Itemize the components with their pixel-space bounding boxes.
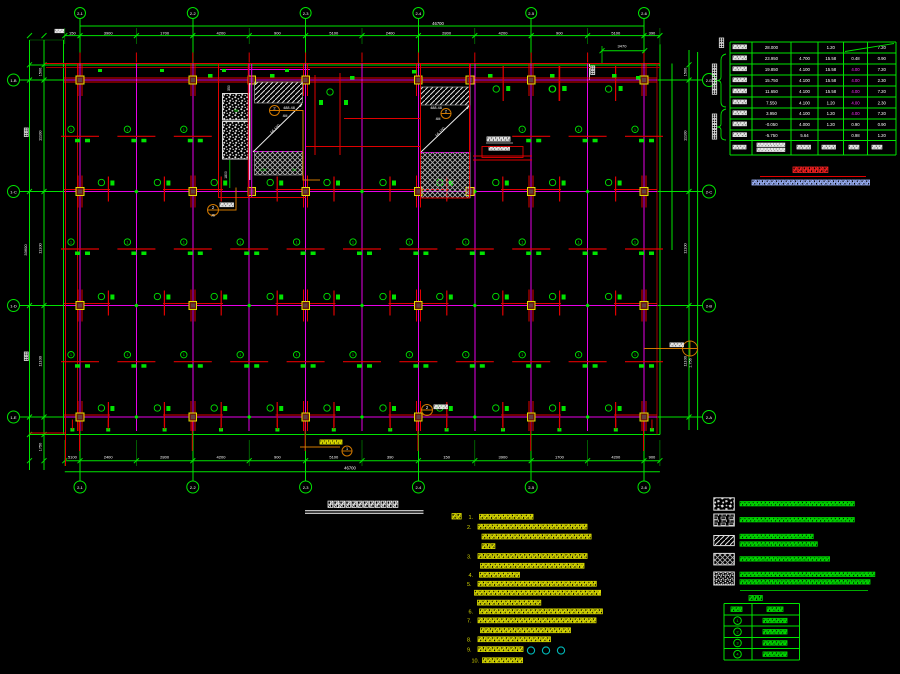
svg-text:9.: 9. xyxy=(467,647,472,653)
svg-text:2-B: 2-B xyxy=(706,304,713,309)
svg-text:2-3: 2-3 xyxy=(303,485,310,490)
svg-text:4.: 4. xyxy=(469,573,474,579)
svg-text:1-B: 1-B xyxy=(10,78,17,83)
svg-text:11100: 11100 xyxy=(683,355,688,366)
svg-text:900: 900 xyxy=(274,454,281,459)
svg-text:1.20: 1.20 xyxy=(827,45,836,50)
svg-text:2400: 2400 xyxy=(386,30,396,35)
svg-text:5100: 5100 xyxy=(68,454,78,459)
svg-text:2-4: 2-4 xyxy=(416,11,423,16)
svg-text:2800: 2800 xyxy=(160,454,170,459)
svg-text:2.30: 2.30 xyxy=(878,100,887,105)
svg-text:4.00: 4.00 xyxy=(851,100,860,105)
svg-text:3900: 3900 xyxy=(499,454,509,459)
svg-text:15.750: 15.750 xyxy=(765,78,779,83)
svg-text:1: 1 xyxy=(408,353,410,357)
svg-text:4200: 4200 xyxy=(499,30,509,35)
svg-text:0.90: 0.90 xyxy=(878,56,887,61)
svg-text:1: 1 xyxy=(521,241,523,245)
svg-text:1-E: 1-E xyxy=(10,415,17,420)
svg-text:2-5: 2-5 xyxy=(528,485,535,490)
svg-text:11100: 11100 xyxy=(38,242,43,253)
svg-text:1: 1 xyxy=(70,128,72,132)
svg-text:900: 900 xyxy=(649,454,656,459)
svg-text:8.: 8. xyxy=(467,638,472,644)
svg-text:1-D: 1-D xyxy=(10,304,17,309)
svg-text:488.48: 488.48 xyxy=(283,106,295,110)
svg-text:3.: 3. xyxy=(467,554,472,560)
svg-text:15.58: 15.58 xyxy=(825,78,836,83)
svg-text:1: 1 xyxy=(239,353,241,357)
svg-text:2-2: 2-2 xyxy=(190,11,197,16)
svg-text:1: 1 xyxy=(465,241,467,245)
svg-text:1750: 1750 xyxy=(39,443,43,451)
svg-text:-5.750: -5.750 xyxy=(765,133,778,138)
svg-text:1: 1 xyxy=(634,128,636,132)
svg-text:3470: 3470 xyxy=(618,44,628,49)
svg-text:0.98: 0.98 xyxy=(851,133,860,138)
svg-text:1: 1 xyxy=(352,241,354,245)
svg-text:3900: 3900 xyxy=(104,30,114,35)
svg-text:19.850: 19.850 xyxy=(765,67,779,72)
svg-text:150: 150 xyxy=(443,454,450,459)
svg-text:X4: X4 xyxy=(292,168,296,172)
svg-text:1: 1 xyxy=(296,353,298,357)
svg-text:7.: 7. xyxy=(467,619,472,625)
svg-text:1: 1 xyxy=(578,128,580,132)
svg-text:1700: 1700 xyxy=(555,454,565,459)
svg-text:1: 1 xyxy=(634,353,636,357)
svg-text:2.30: 2.30 xyxy=(878,78,887,83)
svg-text:1-C: 1-C xyxy=(10,190,17,195)
svg-text:6.: 6. xyxy=(469,610,474,616)
svg-text:4.00: 4.00 xyxy=(851,111,860,116)
svg-text:1: 1 xyxy=(578,353,580,357)
svg-text:1.756: 1.756 xyxy=(689,358,693,368)
svg-text:1: 1 xyxy=(239,241,241,245)
svg-text:2-4: 2-4 xyxy=(416,485,423,490)
svg-text:7.20: 7.20 xyxy=(878,111,887,116)
svg-text:15.58: 15.58 xyxy=(825,67,836,72)
svg-text:1.20: 1.20 xyxy=(827,122,836,127)
svg-text:488.48: 488.48 xyxy=(430,106,442,110)
svg-text:390: 390 xyxy=(649,30,656,35)
svg-text:1: 1 xyxy=(465,353,467,357)
svg-text:7.20: 7.20 xyxy=(878,89,887,94)
svg-text:1500: 1500 xyxy=(39,68,43,76)
svg-text:1.20: 1.20 xyxy=(878,133,887,138)
svg-text:5100: 5100 xyxy=(329,454,339,459)
svg-text:11100: 11100 xyxy=(683,130,688,141)
svg-text:7.20: 7.20 xyxy=(878,67,887,72)
svg-text:2-C: 2-C xyxy=(706,190,713,195)
svg-text:2-6: 2-6 xyxy=(641,11,648,16)
svg-text:11100: 11100 xyxy=(38,355,43,366)
svg-text:1: 1 xyxy=(634,241,636,245)
svg-text:2-2: 2-2 xyxy=(190,485,197,490)
svg-text:2800: 2800 xyxy=(442,30,452,35)
svg-text:33600: 33600 xyxy=(23,244,28,256)
svg-text:1: 1 xyxy=(183,241,185,245)
svg-text:0.90: 0.90 xyxy=(851,122,860,127)
svg-text:11.650: 11.650 xyxy=(765,89,778,94)
svg-text:2-6: 2-6 xyxy=(641,485,648,490)
svg-text:1: 1 xyxy=(408,241,410,245)
svg-text:2-3: 2-3 xyxy=(303,11,310,16)
svg-text:2400: 2400 xyxy=(104,454,114,459)
svg-text:2-1: 2-1 xyxy=(77,485,84,490)
svg-text:1.2K: 1.2K xyxy=(259,168,267,172)
svg-text:1.20: 1.20 xyxy=(827,111,836,116)
svg-text:1: 1 xyxy=(346,447,348,451)
svg-text:5.: 5. xyxy=(467,582,472,588)
svg-text:11100: 11100 xyxy=(683,242,688,253)
svg-text:2-1: 2-1 xyxy=(77,11,84,16)
svg-text:900: 900 xyxy=(556,30,563,35)
svg-text:15.58: 15.58 xyxy=(825,89,836,94)
svg-text:1: 1 xyxy=(352,353,354,357)
svg-text:1: 1 xyxy=(70,241,72,245)
svg-text:350: 350 xyxy=(227,85,231,91)
svg-text:1.: 1. xyxy=(469,515,474,521)
svg-text:5100: 5100 xyxy=(329,30,339,35)
svg-text:1: 1 xyxy=(521,353,523,357)
svg-text:2-5: 2-5 xyxy=(528,11,535,16)
svg-text:1: 1 xyxy=(296,241,298,245)
svg-text:150: 150 xyxy=(69,30,76,35)
svg-text:4200: 4200 xyxy=(217,454,227,459)
svg-text:2.: 2. xyxy=(467,525,472,531)
svg-text:J6: J6 xyxy=(211,214,215,218)
svg-text:4.00: 4.00 xyxy=(851,78,860,83)
svg-text:23.950: 23.950 xyxy=(765,56,779,61)
svg-text:4.700: 4.700 xyxy=(799,56,810,61)
svg-text:15.58: 15.58 xyxy=(825,56,836,61)
svg-text:1: 1 xyxy=(183,128,185,132)
svg-text:Φ8: Φ8 xyxy=(234,109,239,113)
svg-text:1.20: 1.20 xyxy=(827,100,836,105)
svg-text:4.100: 4.100 xyxy=(799,89,810,94)
svg-text:1: 1 xyxy=(521,128,523,132)
svg-text:4.100: 4.100 xyxy=(799,78,810,83)
svg-text:4.100: 4.100 xyxy=(799,67,810,72)
svg-text:900: 900 xyxy=(274,30,281,35)
svg-text:4.00: 4.00 xyxy=(851,89,860,94)
svg-text:4.100: 4.100 xyxy=(799,111,810,116)
svg-text:1: 1 xyxy=(578,241,580,245)
svg-text:46700: 46700 xyxy=(344,466,356,471)
svg-text:1: 1 xyxy=(183,353,185,357)
svg-text:46700: 46700 xyxy=(432,21,444,26)
svg-text:4M: 4M xyxy=(436,117,441,121)
svg-text:4200: 4200 xyxy=(217,30,227,35)
svg-text:5100: 5100 xyxy=(611,30,621,35)
svg-text:0.48: 0.48 xyxy=(851,56,860,61)
svg-text:4200: 4200 xyxy=(611,454,621,459)
svg-text:11100: 11100 xyxy=(38,130,43,141)
svg-text:5.64: 5.64 xyxy=(800,133,809,138)
svg-text:1: 1 xyxy=(126,241,128,245)
svg-text:-0.050: -0.050 xyxy=(765,122,778,127)
svg-text:4.000: 4.000 xyxy=(799,122,810,127)
svg-text:7.550: 7.550 xyxy=(766,100,777,105)
svg-text:4.00: 4.00 xyxy=(851,67,860,72)
svg-text:3.950: 3.950 xyxy=(766,111,777,116)
svg-text:4.100: 4.100 xyxy=(799,100,810,105)
svg-text:1: 1 xyxy=(126,353,128,357)
svg-text:2-D: 2-D xyxy=(706,78,713,83)
svg-text:1800: 1800 xyxy=(224,171,228,179)
svg-text:10.: 10. xyxy=(472,659,480,665)
svg-text:1: 1 xyxy=(70,353,72,357)
svg-text:2-A: 2-A xyxy=(706,415,713,420)
svg-text:390: 390 xyxy=(387,454,394,459)
svg-text:1700: 1700 xyxy=(160,30,170,35)
svg-text:1500: 1500 xyxy=(684,68,688,76)
svg-text:4M: 4M xyxy=(283,114,288,118)
svg-text:1: 1 xyxy=(126,128,128,132)
svg-text:28.000: 28.000 xyxy=(765,45,779,50)
svg-text:0.90: 0.90 xyxy=(878,122,887,127)
